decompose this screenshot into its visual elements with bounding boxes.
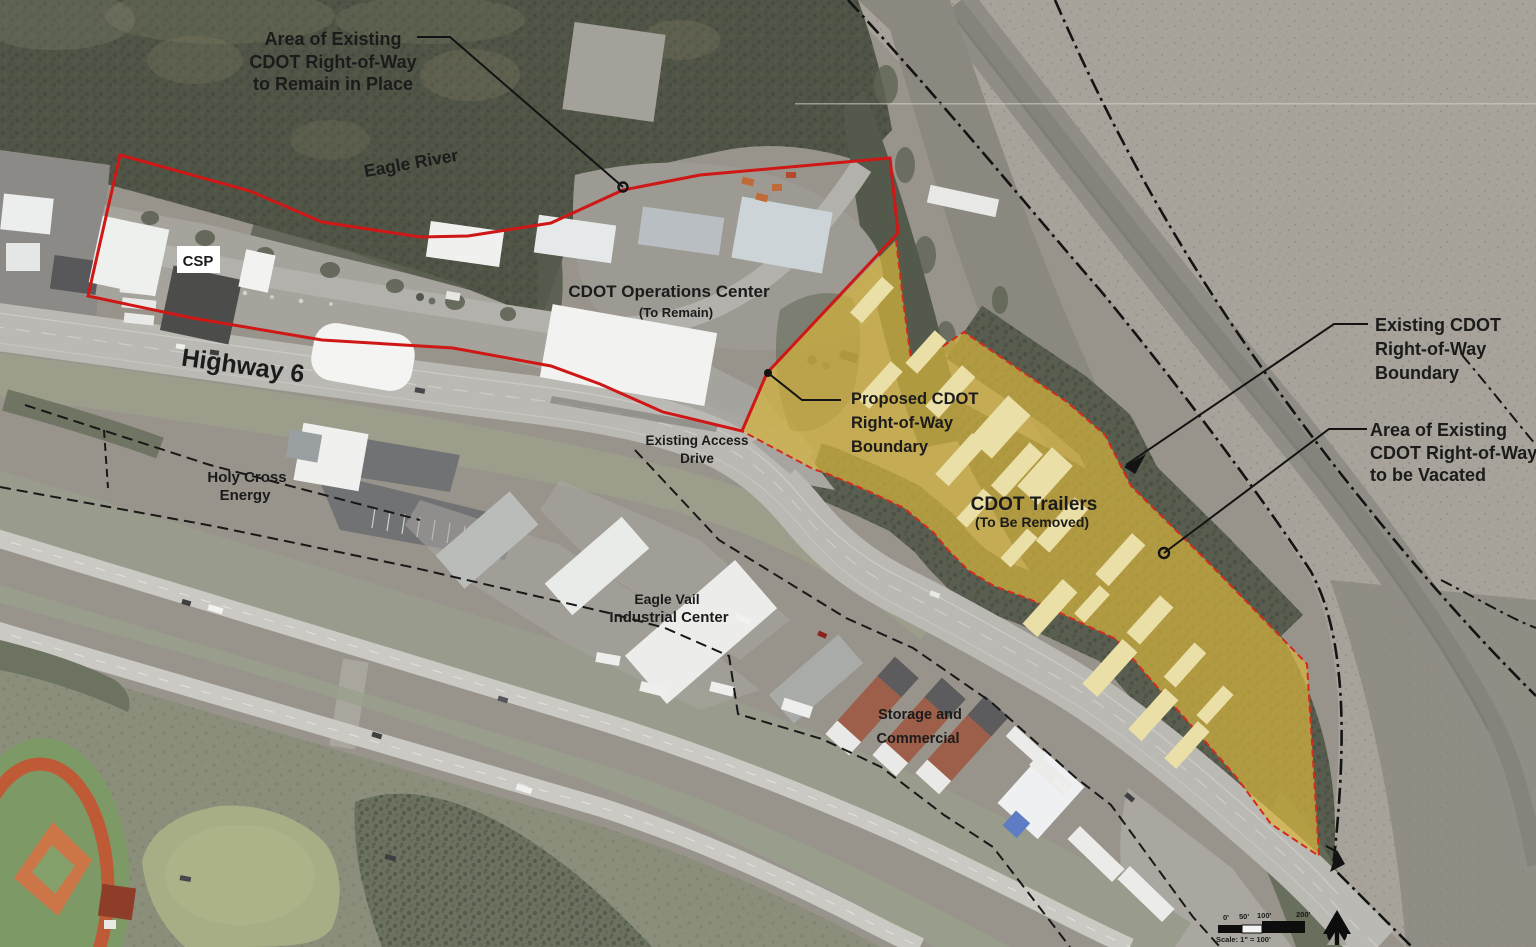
- svg-text:Existing CDOT: Existing CDOT: [1375, 315, 1501, 335]
- svg-text:Eagle Vail: Eagle Vail: [634, 591, 699, 607]
- svg-text:Holy Cross: Holy Cross: [207, 469, 286, 486]
- svg-text:Proposed CDOT: Proposed CDOT: [851, 390, 978, 408]
- svg-text:(To Be Removed): (To Be Removed): [975, 514, 1089, 530]
- svg-text:to Remain in Place: to Remain in Place: [253, 74, 413, 94]
- svg-text:Drive: Drive: [680, 451, 714, 466]
- svg-text:Industrial Center: Industrial Center: [609, 609, 728, 626]
- svg-text:200': 200': [1296, 910, 1311, 919]
- svg-text:Right-of-Way: Right-of-Way: [1375, 339, 1486, 359]
- svg-text:CSP: CSP: [183, 253, 214, 270]
- svg-text:Right-of-Way: Right-of-Way: [851, 414, 954, 432]
- svg-text:CDOT Right-of-Way: CDOT Right-of-Way: [1370, 443, 1536, 463]
- svg-text:Existing Access: Existing Access: [645, 433, 748, 448]
- svg-text:0': 0': [1223, 913, 1229, 922]
- svg-text:Boundary: Boundary: [851, 438, 929, 456]
- svg-text:Area of Existing: Area of Existing: [264, 29, 401, 49]
- svg-text:Area of Existing: Area of Existing: [1370, 420, 1507, 440]
- svg-text:100': 100': [1257, 911, 1272, 920]
- svg-text:Boundary: Boundary: [1375, 363, 1459, 383]
- svg-text:to be Vacated: to be Vacated: [1370, 465, 1486, 485]
- svg-text:Scale: 1" = 100': Scale: 1" = 100': [1216, 935, 1271, 944]
- svg-text:CDOT Trailers: CDOT Trailers: [971, 494, 1098, 515]
- svg-text:(To Remain): (To Remain): [639, 305, 713, 320]
- svg-text:CDOT Operations Center: CDOT Operations Center: [568, 282, 770, 301]
- svg-text:Storage and: Storage and: [878, 707, 962, 723]
- svg-text:Energy: Energy: [220, 487, 272, 504]
- svg-text:CDOT Right-of-Way: CDOT Right-of-Way: [249, 52, 416, 72]
- svg-text:Commercial: Commercial: [876, 731, 959, 747]
- svg-text:50': 50': [1239, 912, 1249, 921]
